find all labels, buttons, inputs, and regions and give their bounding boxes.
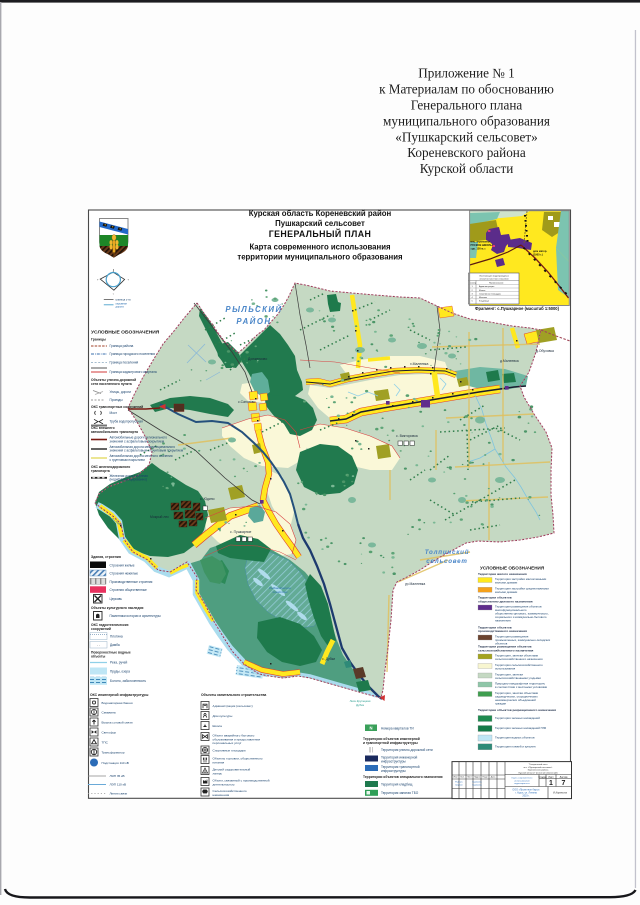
svg-text:Вышка сотовой связи: Вышка сотовой связи (102, 720, 133, 724)
svg-text:Церковь: Церковь (110, 597, 123, 601)
svg-text:РЫЛЬСКИЙ: РЫЛЬСКИЙ (225, 305, 282, 314)
svg-text:Листов: Листов (560, 776, 568, 779)
svg-text:Администрация (сельсовет): Администрация (сельсовет) (213, 704, 253, 708)
svg-text:дорога: дорога (116, 305, 125, 308)
svg-text:использования: использования (495, 666, 516, 670)
svg-text:персональных услуг: персональных услуг (213, 741, 243, 745)
svg-text:Территория пляжей и купален: Территория пляжей и купален (495, 745, 536, 749)
svg-text:Трансформатор: Трансформатор (102, 750, 125, 754)
svg-text:с. Пушкарное: с. Пушкарное (230, 530, 252, 534)
svg-text:использования: использования (514, 780, 530, 782)
svg-text:(недифференцированно): (недифференцированно) (110, 478, 147, 482)
svg-text:Карякина: Карякина (472, 782, 482, 784)
svg-text:Номера кварталов ТИ: Номера кварталов ТИ (381, 726, 414, 730)
svg-text:Граница городского поселения: Граница городского поселения (110, 352, 156, 356)
svg-text:Объекты капитального строитель: Объекты капитального строительства (201, 693, 266, 697)
svg-text:сельскохозяйственного назначен: сельскохозяйственного назначения (495, 657, 543, 661)
svg-text:номер: номер (470, 282, 477, 284)
svg-text:Кореневского района: Кореневского района (528, 769, 549, 772)
svg-text:Толпинский: Толпинский (425, 549, 470, 556)
svg-text:с. Викторовка: с. Викторовка (396, 434, 418, 438)
svg-text:Мокрый лес: Мокрый лес (150, 515, 169, 519)
svg-text:территории м.о.: территории м.о. (514, 783, 531, 785)
svg-text:инфраструктуры: инфраструктуры (381, 759, 406, 763)
svg-text:к Материалам по обоснованию: к Материалам по обоснованию (379, 82, 554, 97)
svg-text:Территория зеленых насаждений: Территория зеленых насаждений ГЛФ (495, 726, 547, 730)
svg-text:значения с асфальтовым и грунт: значения с асфальтовым и грунтовым покры… (110, 449, 184, 453)
svg-text:Памятники истории и архитектур: Памятники истории и архитектуры (110, 614, 162, 618)
svg-text:инфраструктуры: инфраструктуры (381, 769, 406, 773)
svg-text:Территория зеленых насаждений: Территория зеленых насаждений (495, 716, 540, 720)
svg-text:значения с асфальтовым покрыти: значения с асфальтовым покрытием (110, 439, 164, 443)
svg-text:с. Дубки: с. Дубки (322, 657, 335, 661)
svg-text:сельсовет: сельсовет (426, 558, 467, 565)
svg-text:Дом культуры: Дом культуры (213, 714, 234, 718)
svg-text:питания: питания (213, 760, 225, 764)
svg-text:ЛЭП 35 кВ: ЛЭП 35 кВ (110, 774, 125, 778)
svg-text:- -: - - (97, 643, 100, 647)
svg-text:Карта современного: Карта современного (512, 778, 533, 780)
svg-text:Генерального плана: Генерального плана (411, 97, 523, 112)
svg-text:Дубка: Дубка (356, 703, 364, 707)
svg-text:жилыми домами: жилыми домами (495, 590, 518, 594)
svg-text:Долженково: Долженково (248, 357, 267, 361)
svg-text:Труба водопропускная: Труба водопропускная (110, 420, 144, 424)
svg-text:Лист: Лист (548, 776, 554, 779)
svg-text:в соответствии с местными усло: в соответствии с местными условиями (495, 685, 548, 689)
svg-text:с грунтовым покрытием: с грунтовым покрытием (110, 458, 145, 462)
svg-text:УСЛОВНЫЕ ОБОЗНАЧЕНИЯ: УСЛОВНЫЕ ОБОЗНАЧЕНИЯ (480, 566, 544, 571)
svg-text:Стадия: Стадия (538, 776, 547, 779)
svg-text:назначения: назначения (495, 619, 511, 623)
svg-text:объектов местного значения: объектов местного значения (479, 278, 509, 280)
svg-text:Граница кадастрового квартала: Граница кадастрового квартала (110, 370, 157, 374)
svg-text:муниципального образования: муниципального образования (383, 113, 550, 128)
svg-text:автомобильного транспорта: автомобильного транспорта (91, 430, 138, 434)
svg-text:д.Обуховка: д.Обуховка (536, 349, 554, 353)
svg-text:Курской области: Курской области (420, 161, 514, 176)
svg-text:Строения жилые: Строения жилые (110, 563, 135, 567)
svg-text:ГЕНЕРАЛЬНЫЙ ПЛАН: ГЕНЕРАЛЬНЫЙ ПЛАН (269, 228, 371, 239)
svg-text:*: * (113, 293, 114, 297)
svg-text:назначения: назначения (213, 793, 230, 797)
svg-text:Границы: Границы (91, 338, 106, 342)
svg-text:Скважина: Скважина (102, 710, 116, 714)
svg-text:Наименование: Наименование (489, 282, 504, 284)
svg-text:деятельностью: деятельностью (213, 782, 236, 786)
svg-text:РАЙОН: РАЙОН (236, 317, 271, 326)
svg-text:ЛЭП 110 кВ: ЛЭП 110 кВ (110, 783, 127, 787)
svg-text:Строения нежилые: Строения нежилые (110, 572, 139, 576)
svg-text:Мост: Мост (110, 411, 118, 415)
svg-text:Граница поселения: Граница поселения (110, 361, 139, 365)
svg-text:сооружений: сооружений (91, 627, 111, 631)
svg-text:Карякина: Карякина (472, 785, 482, 787)
svg-text:Болото, заболоченность: Болото, заболоченность (110, 679, 147, 683)
svg-text:жилыми домами: жилыми домами (495, 580, 518, 584)
svg-text:Территория занятая ТБО: Территория занятая ТБО (381, 791, 419, 795)
svg-text:ПУСКОВ ШКОЛЫ: ПУСКОВ ШКОЛЫ (471, 243, 494, 247)
svg-text:с.Сапогово: с.Сапогово (238, 400, 256, 404)
svg-text:Проезды: Проезды (110, 398, 124, 402)
svg-text:Экспликация водопроводных: Экспликация водопроводных (479, 276, 510, 278)
svg-text:Кладбище: Кладбище (479, 301, 490, 303)
svg-text:Лист: Лист (467, 777, 472, 779)
svg-text:Улицы, дороги: Улицы, дороги (110, 390, 132, 394)
svg-text:д.Малеевка: д.Малеевка (500, 359, 519, 363)
svg-text:общественно-делового назначени: общественно-делового назначения (478, 599, 533, 603)
svg-text:производственного назначения: производственного назначения (478, 629, 527, 633)
svg-text:с. Юдино: с. Юдино (200, 497, 215, 501)
svg-text:Кореневского района: Кореневского района (407, 145, 526, 160)
svg-text:«Пушкарский сельсовет»: «Пушкарский сельсовет» (395, 129, 537, 144)
svg-text:Разраб.: Разраб. (455, 782, 463, 784)
svg-text:ур.Малеевка: ур.Малеевка (405, 582, 425, 586)
svg-text:граница с-та: граница с-та (116, 299, 132, 302)
svg-text:N: N (369, 726, 372, 731)
svg-text:ОКС транспортных сооружений: ОКС транспортных сооружений (91, 405, 143, 409)
svg-text:Производственные строения: Производственные строения (110, 580, 153, 584)
svg-text:Чертил: Чертил (455, 785, 463, 787)
svg-text:Курская область Кореневский ра: Курская область Кореневский район (249, 209, 392, 218)
svg-text:Пушкарский сельсовет: Пушкарский сельсовет (275, 219, 365, 228)
svg-text:Территория улично-дорожной сет: Территория улично-дорожной сети (381, 748, 433, 752)
svg-text:объекты: объекты (91, 655, 106, 659)
svg-text:Линии связи: Линии связи (110, 792, 128, 796)
svg-text:Спортивные площадки: Спортивные площадки (213, 748, 246, 752)
svg-text:Подстанция 110 кВ: Подстанция 110 кВ (102, 761, 129, 765)
svg-text:Кол.: Кол. (460, 777, 465, 779)
svg-text:транспорта: транспорта (91, 469, 110, 473)
svg-text:Граница района: Граница района (110, 344, 134, 348)
svg-text:сельскохозяйственными угодьями: сельскохозяйственными угодьями (495, 676, 541, 680)
svg-text:Приложение № 1: Приложение № 1 (418, 66, 515, 81)
svg-text:ОКС инженерной инфраструктуры: ОКС инженерной инфраструктуры (90, 693, 148, 697)
svg-text:Объекты культурного наследия: Объекты культурного наследия (91, 606, 143, 610)
svg-text:И.Карякина: И.Карякина (553, 791, 567, 795)
svg-text:1: 1 (549, 780, 553, 787)
svg-text:Светофор: Светофор (102, 730, 117, 734)
svg-text:Водонапорная башня: Водонапорная башня (102, 701, 133, 705)
svg-text:(1905 г.): (1905 г.) (533, 253, 543, 257)
svg-text:«ур. 150 м.»: «ур. 150 м.» (471, 247, 487, 251)
svg-text:Плотина: Плотина (110, 635, 123, 639)
svg-text:Территории объектов рекреацион: Территории объектов рекреационного назна… (478, 708, 556, 712)
svg-text:7: 7 (562, 780, 566, 787)
svg-text:Фрагмент: с.Пушкарное (масштаб: Фрагмент: с.Пушкарное (масштаб 1:5000) (475, 306, 560, 311)
svg-text:№док: №док (474, 776, 480, 779)
svg-text:Школа: Школа (213, 724, 223, 728)
svg-text:Территория кладбищ: Территория кладбищ (381, 782, 413, 786)
svg-text:Подп: Подп (483, 777, 488, 779)
svg-text:Строения общественные: Строения общественные (110, 588, 147, 592)
svg-text:сельскохозяйственного назначен: сельскохозяйственного назначения (478, 648, 533, 652)
svg-text:Дамба: Дамба (110, 643, 120, 647)
svg-text:м.о. «Пушкарский сельсовет»: м.о. «Пушкарский сельсовет» (524, 766, 554, 769)
svg-text:Курской области" (внесение изм: Курской области" (внесение изменений) (519, 771, 558, 774)
svg-text:УСЛОВНЫЕ ОБОЗНАЧЕНИЯ: УСЛОВНЫЕ ОБОЗНАЧЕНИЯ (91, 330, 160, 336)
svg-text:"Генеральный план: "Генеральный план (529, 763, 548, 766)
svg-text:и транспортной инфраструктуры: и транспортной инфраструктуры (363, 741, 418, 745)
svg-text:Река, ручей: Река, ручей (110, 661, 128, 665)
svg-text:Территории объектов специально: Территории объектов специального назначе… (363, 775, 443, 779)
svg-text:сети населенного пункта: сети населенного пункта (91, 382, 132, 386)
svg-text:Изм: Изм (454, 777, 458, 779)
svg-text:хозяйство: хозяйство (272, 590, 288, 594)
svg-text:территории муниципального обра: территории муниципального образования (237, 253, 402, 262)
svg-text:х.Малеевка: х.Малеевка (410, 362, 428, 366)
svg-text:Территория водных объектов: Территория водных объектов (495, 736, 535, 740)
svg-text:2019 г.: 2019 г. (522, 795, 530, 798)
svg-text:Территории жилого назначения: Территории жилого назначения (478, 572, 527, 576)
svg-text:Администрация: Администрация (479, 285, 494, 288)
svg-text:Карта современного использован: Карта современного использования (249, 243, 390, 252)
svg-text:лагерь: лагерь (213, 771, 223, 775)
svg-text:Пруды, озера: Пруды, озера (110, 669, 130, 673)
svg-text:ТПС: ТПС (102, 740, 109, 744)
svg-text:граждан: граждан (495, 702, 506, 706)
svg-text:Здания, строения: Здания, строения (91, 555, 121, 559)
